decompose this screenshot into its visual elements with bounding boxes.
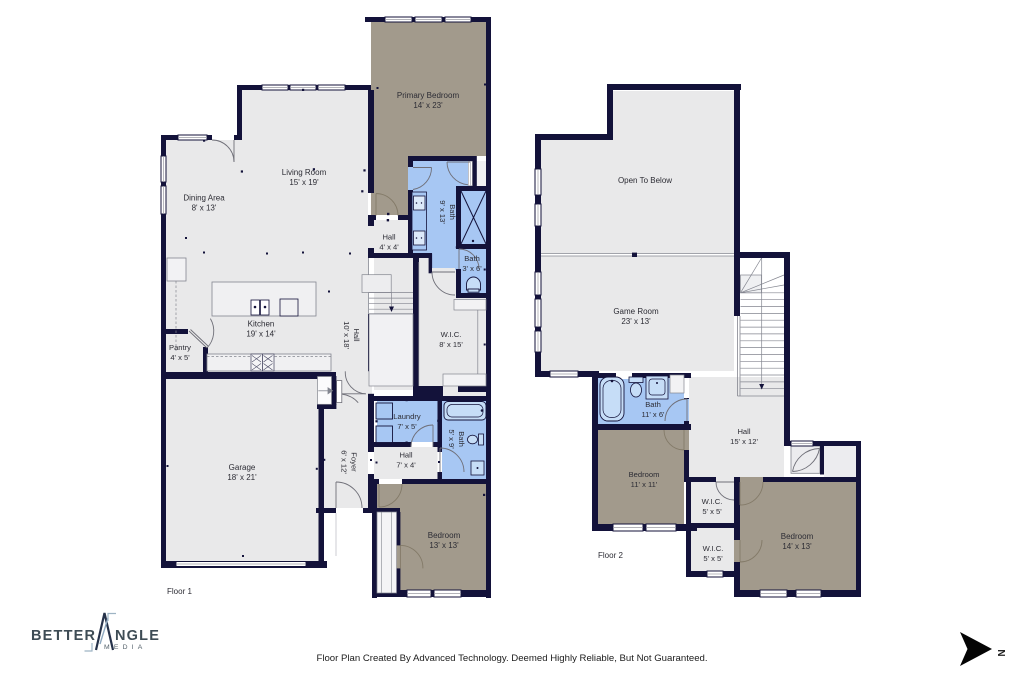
svg-text:Hall: Hall — [382, 233, 395, 242]
svg-text:Hall: Hall — [352, 328, 361, 341]
svg-text:11' x 6': 11' x 6' — [641, 410, 665, 419]
svg-text:5' x 9': 5' x 9' — [447, 429, 456, 449]
svg-text:BETTER: BETTER — [31, 628, 96, 644]
svg-text:Kitchen: Kitchen — [248, 320, 275, 329]
svg-text:3' x 6': 3' x 6' — [462, 264, 482, 273]
svg-text:Bath: Bath — [457, 431, 466, 447]
svg-text:Garage: Garage — [229, 463, 256, 472]
svg-text:23' x 13': 23' x 13' — [621, 317, 651, 326]
svg-text:18' x 21': 18' x 21' — [227, 473, 257, 482]
svg-text:7' x 4': 7' x 4' — [396, 461, 416, 470]
svg-text:11' x 11': 11' x 11' — [631, 480, 658, 489]
svg-text:Bath: Bath — [645, 400, 661, 409]
svg-text:8' x 13': 8' x 13' — [192, 204, 217, 213]
svg-text:14' x 23': 14' x 23' — [413, 101, 443, 110]
svg-text:N: N — [995, 649, 1006, 656]
svg-text:Bath: Bath — [448, 204, 457, 220]
svg-text:Hall: Hall — [737, 427, 750, 436]
svg-text:4' x 5': 4' x 5' — [170, 353, 190, 362]
svg-text:Foyer: Foyer — [350, 452, 359, 472]
svg-text:Floor 1: Floor 1 — [167, 587, 192, 596]
svg-text:15' x 19': 15' x 19' — [289, 178, 319, 187]
svg-text:Bedroom: Bedroom — [629, 470, 660, 479]
svg-text:W.I.C.: W.I.C. — [703, 544, 724, 553]
svg-text:NGLE: NGLE — [115, 628, 160, 644]
svg-text:5' x 5': 5' x 5' — [703, 554, 723, 563]
svg-text:8' x 15': 8' x 15' — [439, 340, 463, 349]
svg-text:6' x 12': 6' x 12' — [340, 450, 349, 474]
svg-text:15' x 12': 15' x 12' — [730, 437, 758, 446]
svg-text:W.I.C.: W.I.C. — [702, 497, 723, 506]
svg-text:Floor 2: Floor 2 — [598, 551, 623, 560]
svg-text:Bedroom: Bedroom — [781, 532, 814, 541]
svg-text:W.I.C.: W.I.C. — [441, 330, 462, 339]
svg-text:4' x 4': 4' x 4' — [379, 243, 399, 252]
svg-text:19' x 14': 19' x 14' — [246, 330, 276, 339]
svg-text:Game Room: Game Room — [613, 307, 659, 316]
svg-text:5' x 5': 5' x 5' — [702, 507, 722, 516]
svg-text:Bath: Bath — [464, 254, 480, 263]
svg-text:7' x 5': 7' x 5' — [397, 422, 417, 431]
svg-text:Living Room: Living Room — [282, 168, 327, 177]
svg-text:Pantry: Pantry — [169, 343, 191, 352]
svg-text:Open To Below: Open To Below — [618, 176, 672, 185]
svg-text:Dining Area: Dining Area — [183, 194, 225, 203]
svg-text:14' x 13': 14' x 13' — [782, 542, 812, 551]
svg-text:Primary Bedroom: Primary Bedroom — [397, 91, 460, 100]
svg-text:Laundry: Laundry — [393, 412, 421, 421]
svg-text:13' x 13': 13' x 13' — [429, 541, 459, 550]
svg-text:9' x 13': 9' x 13' — [438, 200, 447, 224]
svg-text:Floor Plan Created By Advanced: Floor Plan Created By Advanced Technolog… — [316, 653, 707, 664]
svg-text:Bedroom: Bedroom — [428, 531, 461, 540]
svg-text:10' x 18': 10' x 18' — [342, 321, 351, 349]
svg-text:Hall: Hall — [399, 451, 412, 460]
svg-text:MEDIA: MEDIA — [104, 644, 147, 651]
